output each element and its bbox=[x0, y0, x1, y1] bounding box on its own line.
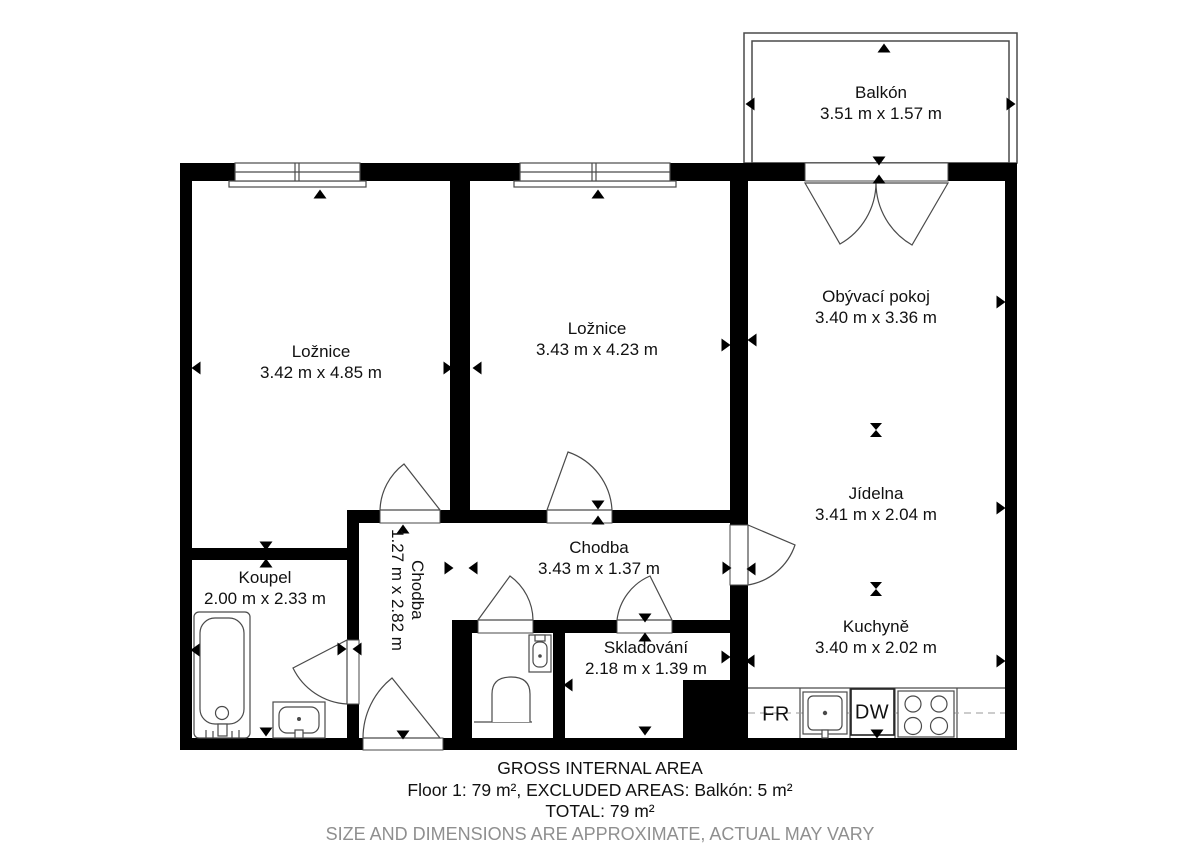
room-name: Chodba bbox=[407, 529, 427, 651]
room-name: Ložnice bbox=[536, 318, 658, 339]
room-label-jidelna: Jídelna 3.41 m x 2.04 m bbox=[815, 483, 937, 525]
wc-sink-icon bbox=[529, 635, 551, 672]
room-name: Balkón bbox=[820, 82, 942, 103]
room-label-chodba-vertical: Chodba 1.27 m x 2.82 m bbox=[387, 529, 427, 651]
total-area-line: TOTAL: 79 m² bbox=[0, 801, 1200, 823]
floor-plan: Balkón 3.51 m x 1.57 m Ložnice 3.42 m x … bbox=[0, 0, 1200, 848]
room-name: Obývací pokoj bbox=[815, 286, 937, 307]
room-name: Chodba bbox=[538, 537, 660, 558]
gross-internal-area-title: GROSS INTERNAL AREA bbox=[0, 758, 1200, 780]
room-label-chodba-horizontal: Chodba 3.43 m x 1.37 m bbox=[538, 537, 660, 579]
room-dims: 3.42 m x 4.85 m bbox=[260, 362, 382, 383]
stove-icon bbox=[898, 691, 954, 737]
room-name: Ložnice bbox=[260, 341, 382, 362]
kitchen-sink-icon bbox=[803, 692, 847, 738]
room-dims: 3.40 m x 3.36 m bbox=[815, 307, 937, 328]
room-dims: 3.40 m x 2.02 m bbox=[815, 637, 937, 658]
room-label-loznice-2: Ložnice 3.43 m x 4.23 m bbox=[536, 318, 658, 360]
room-dims: 2.00 m x 2.33 m bbox=[204, 588, 326, 609]
disclaimer-line: SIZE AND DIMENSIONS ARE APPROXIMATE, ACT… bbox=[0, 824, 1200, 846]
floor-area-line: Floor 1: 79 m², EXCLUDED AREAS: Balkón: … bbox=[0, 780, 1200, 802]
bathtub-icon bbox=[194, 612, 250, 738]
room-label-kuchyne: Kuchyně 3.40 m x 2.02 m bbox=[815, 616, 937, 658]
bathroom-sink-icon bbox=[273, 702, 325, 738]
area-summary: GROSS INTERNAL AREA Floor 1: 79 m², EXCL… bbox=[0, 758, 1200, 845]
room-name: Kuchyně bbox=[815, 616, 937, 637]
dishwasher-label: DW bbox=[855, 702, 889, 725]
floor-plan-drawing bbox=[0, 0, 1200, 848]
room-dims: 3.43 m x 1.37 m bbox=[538, 558, 660, 579]
room-name: Jídelna bbox=[815, 483, 937, 504]
room-label-loznice-1: Ložnice 3.42 m x 4.85 m bbox=[260, 341, 382, 383]
room-name: Koupel bbox=[204, 567, 326, 588]
room-name: Skladování bbox=[585, 637, 707, 658]
toilet-icon bbox=[474, 677, 532, 722]
room-dims: 1.27 m x 2.82 m bbox=[387, 529, 407, 651]
room-label-koupel: Koupel 2.00 m x 2.33 m bbox=[204, 567, 326, 609]
room-label-skladovani: Skladování 2.18 m x 1.39 m bbox=[585, 637, 707, 679]
room-dims: 3.43 m x 4.23 m bbox=[536, 339, 658, 360]
room-dims: 3.41 m x 2.04 m bbox=[815, 504, 937, 525]
fridge-label: FR bbox=[762, 704, 790, 727]
room-label-obyvaci-pokoj: Obývací pokoj 3.40 m x 3.36 m bbox=[815, 286, 937, 328]
room-dims: 2.18 m x 1.39 m bbox=[585, 658, 707, 679]
room-dims: 3.51 m x 1.57 m bbox=[820, 103, 942, 124]
room-label-balkon: Balkón 3.51 m x 1.57 m bbox=[820, 82, 942, 124]
